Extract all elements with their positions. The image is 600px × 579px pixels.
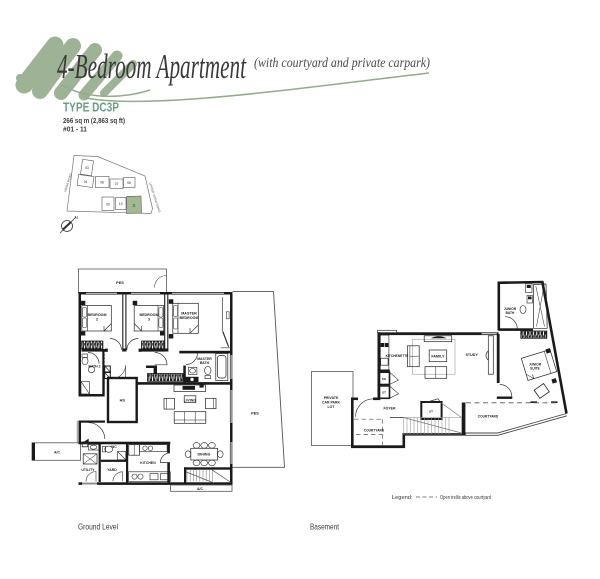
svg-text:ST: ST [429,410,433,414]
svg-text:WC: WC [111,445,117,449]
svg-text:COURTYARD: COURTYARD [478,415,499,419]
svg-text:A/C: A/C [197,487,203,491]
svg-text:BEDROOM: BEDROOM [139,313,158,317]
svg-text:CAR PARK: CAR PARK [322,400,341,404]
svg-text:BATH: BATH [200,361,210,365]
svg-text:Ground Level: Ground Level [78,522,118,532]
svg-text:03: 03 [85,166,89,170]
svg-text:FOYER: FOYER [384,407,396,411]
svg-text:PRIVATE: PRIVATE [324,396,339,400]
svg-text:SH: SH [382,377,386,381]
svg-text:KITCHEN: KITCHEN [140,461,156,465]
svg-text:ST: ST [382,391,386,395]
svg-text:N: N [75,215,78,220]
svg-text:4-Bedroom Apartment: 4-Bedroom Apartment [57,47,247,86]
svg-text:COURTYARD: COURTYARD [364,429,385,433]
svg-text:PES: PES [251,412,259,416]
svg-text:09: 09 [106,203,110,207]
svg-text:Open trellis above courtyard: Open trellis above courtyard [440,495,491,501]
svg-text:YARD: YARD [107,468,117,472]
svg-text:LOT: LOT [328,405,336,409]
svg-text:KITCHENETTE: KITCHENETTE [386,354,409,358]
svg-text:BEDROOM: BEDROOM [87,313,106,317]
svg-text:BATH: BATH [506,311,515,315]
svg-text:WISHI ROAD: WISHI ROAD [63,172,73,192]
svg-text:MASTER: MASTER [181,312,197,316]
svg-text:HS: HS [120,399,126,403]
svg-text:07: 07 [115,182,119,186]
svg-text:08: 08 [100,181,104,185]
svg-text:BEDROOM: BEDROOM [179,316,198,320]
svg-text:2: 2 [96,317,98,321]
svg-text:BATH 2: BATH 2 [89,365,101,369]
svg-text:11: 11 [132,204,136,208]
svg-text:Basement: Basement [310,522,340,532]
svg-text:04: 04 [84,180,88,184]
svg-text:A/C: A/C [54,451,60,455]
svg-text:06: 06 [127,181,131,185]
svg-text:UTILITY: UTILITY [81,468,95,472]
svg-text:DINING: DINING [198,453,211,457]
svg-text:3: 3 [148,317,150,321]
svg-text:FAMILY: FAMILY [431,355,445,359]
svg-text:LIVING: LIVING [184,398,196,402]
svg-text:SUITE: SUITE [530,367,540,371]
svg-text:STUDY: STUDY [465,353,478,357]
svg-text:10: 10 [119,202,123,206]
svg-text:PES: PES [116,281,124,285]
svg-text:TYPE DC3P: TYPE DC3P [63,100,119,115]
svg-text:#01 - 11: #01 - 11 [63,125,87,134]
svg-text:Legend:: Legend: [392,495,413,501]
svg-text:(with courtyard and private ca: (with courtyard and private carpark) [254,55,430,70]
